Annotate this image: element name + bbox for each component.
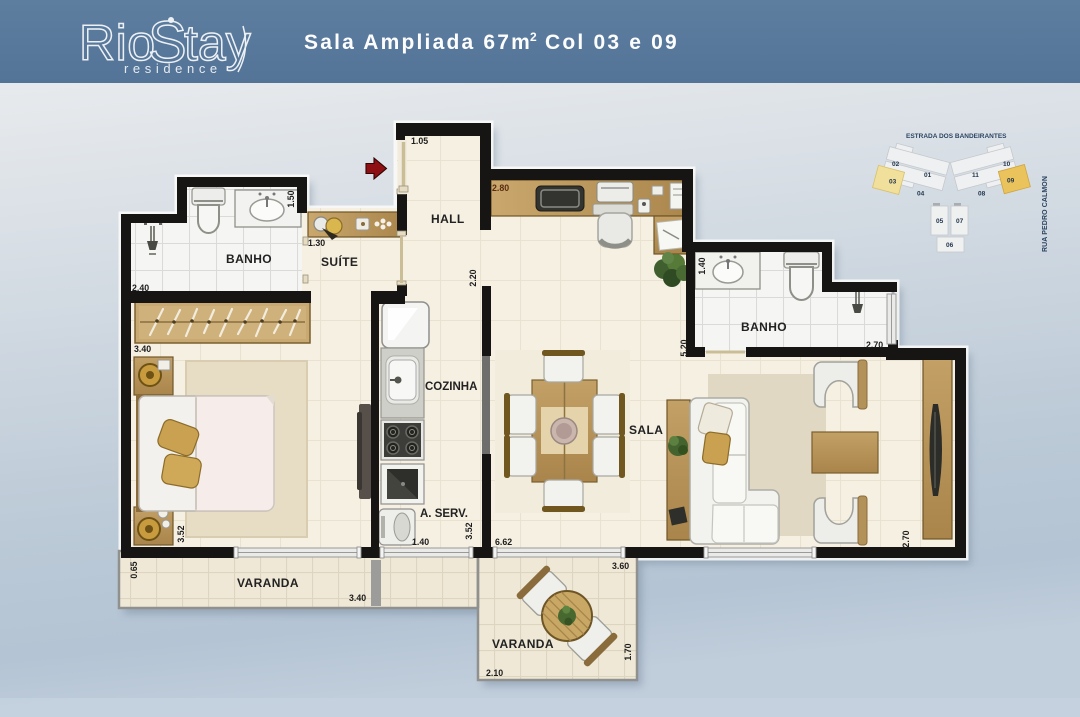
svg-text:2.70: 2.70 (901, 530, 911, 547)
svg-text:3.52: 3.52 (464, 522, 474, 539)
svg-text:3.40: 3.40 (134, 344, 151, 354)
svg-text:3.60: 3.60 (612, 561, 629, 571)
svg-text:11: 11 (972, 172, 979, 179)
svg-text:BANHO: BANHO (226, 252, 272, 266)
svg-text:2.40: 2.40 (132, 283, 149, 293)
svg-text:ESTRADA DOS BANDEIRANTES: ESTRADA DOS BANDEIRANTES (906, 133, 1007, 140)
svg-text:SALA: SALA (629, 423, 663, 437)
svg-text:2.70: 2.70 (866, 340, 883, 350)
svg-text:5.20: 5.20 (679, 339, 689, 356)
svg-text:06: 06 (946, 242, 954, 249)
svg-text:RUA PEDRO CALMON: RUA PEDRO CALMON (1042, 176, 1049, 252)
svg-text:2.10: 2.10 (486, 668, 503, 678)
svg-text:VARANDA: VARANDA (492, 637, 554, 651)
svg-text:A. SERV.: A. SERV. (420, 508, 468, 520)
svg-text:10: 10 (1003, 161, 1011, 168)
svg-text:08: 08 (978, 191, 986, 198)
svg-text:1.40: 1.40 (412, 537, 429, 547)
svg-text:Sala Ampliada 67m: Sala Ampliada 67m (304, 31, 532, 54)
svg-text:3.52: 3.52 (176, 525, 186, 542)
svg-text:01: 01 (924, 172, 932, 179)
svg-text:6.62: 6.62 (495, 537, 512, 547)
svg-text:2: 2 (530, 30, 537, 44)
svg-text:1.30: 1.30 (308, 238, 325, 248)
svg-text:0.65: 0.65 (129, 561, 139, 578)
svg-text:HALL: HALL (431, 212, 465, 226)
svg-text:residence: residence (124, 61, 222, 76)
svg-text:3.40: 3.40 (349, 593, 366, 603)
svg-text:04: 04 (917, 191, 925, 198)
svg-text:03: 03 (889, 179, 897, 186)
svg-text:1.40: 1.40 (697, 257, 707, 274)
svg-text:1.50: 1.50 (286, 190, 296, 207)
svg-text:05: 05 (936, 218, 944, 225)
svg-text:COZINHA: COZINHA (425, 381, 477, 393)
svg-text:02: 02 (892, 161, 900, 168)
svg-text:1.70: 1.70 (623, 643, 633, 660)
svg-text:09: 09 (1007, 178, 1015, 185)
svg-text:VARANDA: VARANDA (237, 576, 299, 590)
svg-text:Col 03 e 09: Col 03 e 09 (545, 31, 679, 54)
svg-text:SUÍTE: SUÍTE (321, 254, 358, 269)
svg-text:BANHO: BANHO (741, 320, 787, 334)
svg-text:2.20: 2.20 (468, 269, 478, 286)
svg-text:1.05: 1.05 (411, 136, 428, 146)
svg-text:07: 07 (956, 218, 964, 225)
svg-text:2.80: 2.80 (492, 183, 509, 193)
